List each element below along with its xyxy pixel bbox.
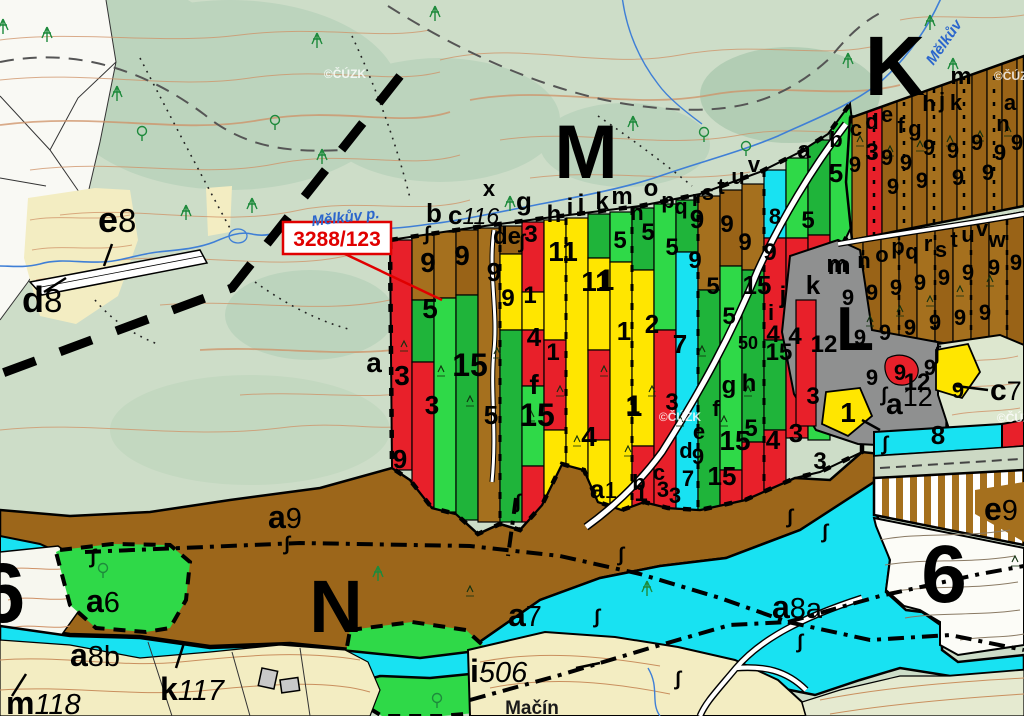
label-num-100: 5 <box>706 273 719 300</box>
label-num-151: 9 <box>879 320 891 345</box>
label-num-125: 3 <box>669 483 681 508</box>
label-r-q: q <box>905 239 918 264</box>
label-ltr-h: h <box>547 201 562 228</box>
label-r-r: r <box>924 231 933 256</box>
label-m118: m118 <box>6 685 81 716</box>
label-num-124: 3 <box>657 477 669 502</box>
label-k-f: f <box>897 113 905 138</box>
label-num-144: 9 <box>890 275 902 300</box>
label-a9: a9 <box>268 499 302 535</box>
label-r-u: u <box>961 222 974 247</box>
label-ltr-a-left: a <box>366 347 382 378</box>
label-ltr-s: s <box>702 180 714 205</box>
label-num-92: 15 <box>519 397 555 433</box>
label-num-95: 2 <box>645 309 659 339</box>
label-num-138: 9 <box>887 174 899 199</box>
label-num-118: 3 <box>789 418 803 448</box>
label-ltr-x: x <box>483 176 496 201</box>
label-a1: a1 <box>590 474 617 504</box>
label-num-115: 5 <box>744 415 757 442</box>
label-num-161: 12 <box>904 369 931 396</box>
label-k-a: a <box>1004 90 1017 115</box>
label-num-163: 8 <box>769 204 781 229</box>
label-num-145: 9 <box>914 270 926 295</box>
label-num-149: 9 <box>1010 250 1022 275</box>
label-num-78: 5 <box>422 293 438 324</box>
label-a6: a6 <box>86 583 120 619</box>
label-b-d: d <box>679 438 692 463</box>
label-r-s: s <box>935 237 947 262</box>
label-num-102: 5 <box>613 227 626 254</box>
label-num-155: 9 <box>979 300 991 325</box>
label-r-w: w <box>987 227 1006 252</box>
label-num-137: 9 <box>1011 130 1023 155</box>
label-k-k: k <box>950 90 963 115</box>
label-num-134: 9 <box>947 138 959 163</box>
label-place-macin: Mačín <box>505 698 559 716</box>
label-num-90: 4 <box>527 322 542 352</box>
label-num-99: 9 <box>688 247 701 274</box>
label-b-h: h <box>742 370 757 397</box>
label-num-93: 1 <box>598 264 615 297</box>
label-num-116: 4 <box>581 421 597 452</box>
label-num-142: 9 <box>842 285 854 310</box>
label-num-123: 7 <box>682 466 694 491</box>
label-num-131: 9 <box>881 145 893 170</box>
label-ltr-b: b <box>426 198 442 228</box>
label-num-87: 3 <box>524 221 537 248</box>
label-wm-1: ©ČÚZK <box>659 409 702 424</box>
label-num-160: 12 <box>811 331 838 358</box>
label-l-m: m <box>827 250 850 280</box>
label-num-103: 5 <box>641 219 654 246</box>
label-num-79: 3 <box>394 360 410 391</box>
label-k-h: h <box>922 91 935 116</box>
label-l-j: j <box>779 282 787 309</box>
label-num-120: 3 <box>813 448 826 475</box>
callout-text: 3288/123 <box>293 228 381 251</box>
label-num-85: 9 <box>501 285 514 312</box>
label-num-135: 9 <box>971 130 983 155</box>
label-ltr-k: k <box>595 188 609 215</box>
label-num-91: 1 <box>546 339 559 366</box>
label-a8a: a8a <box>772 589 823 625</box>
map-canvas[interactable]: 3288/123 ∫∫∫∫∫∫∫∫∫∫∫∫∫∫ MKLN66e8d8a9a6a8… <box>0 0 1024 716</box>
label-num-148: 9 <box>988 255 1000 280</box>
label-r-t: t <box>950 227 958 252</box>
label-b-f: f <box>712 396 720 421</box>
label-num-132: 9 <box>900 150 912 175</box>
label-num-80: 3 <box>425 390 439 420</box>
label-ltr-q: q <box>674 194 687 219</box>
label-ltr-g: g <box>516 186 532 216</box>
label-num-129: 3 <box>865 139 878 166</box>
label-b-g: g <box>722 372 737 399</box>
label-a7: a7 <box>508 597 542 633</box>
label-num-128: 5 <box>829 158 843 188</box>
label-num-126: 1 <box>626 390 640 420</box>
label-num-150: 9 <box>854 325 866 350</box>
label-big-N: N <box>309 565 362 648</box>
label-e9: e9 <box>984 491 1018 527</box>
label-wm-2: ©ČÚZK <box>324 66 367 81</box>
label-num-164: 5 <box>801 207 814 234</box>
label-k-c: c <box>850 116 862 141</box>
label-num-130: 9 <box>849 152 861 177</box>
label-big-K: K <box>865 19 926 113</box>
label-num-106: 9 <box>720 211 733 238</box>
label-num-113: 4 <box>788 323 802 350</box>
label-num-109: 15 <box>743 270 772 300</box>
label-num-143: 9 <box>866 280 878 305</box>
label-num-104: 5 <box>665 234 678 261</box>
label-r-n: n <box>857 248 870 273</box>
label-num-121: 15 <box>708 461 737 491</box>
label-k117: k117 <box>160 671 226 707</box>
label-num-153: 9 <box>929 310 941 335</box>
label-r-p: p <box>891 234 904 259</box>
label-num-162: 1 <box>840 397 856 428</box>
field-yellow-small <box>206 186 232 236</box>
label-num-127: 1 <box>634 480 647 507</box>
label-ltr-a-top: a <box>797 137 811 164</box>
label-big-M: M <box>554 110 617 195</box>
label-r-v: v <box>976 216 989 241</box>
label-k-m: m <box>950 63 971 90</box>
label-num-97: 7 <box>673 329 687 359</box>
label-c7: c7 <box>990 374 1022 407</box>
building-footprint <box>258 668 277 689</box>
label-i506: i506 <box>470 653 528 689</box>
label-num-154: 9 <box>954 305 966 330</box>
label-ltr-i: i <box>567 194 574 221</box>
label-num-146: 9 <box>938 265 950 290</box>
label-num-117: 4 <box>766 425 781 455</box>
label-num-101: 5 <box>722 303 735 330</box>
label-num-105: 9 <box>690 204 704 234</box>
label-ltr-f-mid: f <box>529 369 539 400</box>
label-ltr-de: de <box>493 223 521 250</box>
label-ltr-p: p <box>661 188 674 213</box>
label-k-g: g <box>908 116 921 141</box>
label-num-107: 9 <box>738 229 751 256</box>
label-num-76: 9 <box>420 247 436 278</box>
label-k-e: e <box>881 102 893 127</box>
label-ltr-o: o <box>644 175 659 202</box>
label-a8b: a8b <box>70 637 120 673</box>
label-k-j: j <box>938 88 945 113</box>
label-ltr-u: u <box>731 164 744 189</box>
label-num-84: 9 <box>487 257 501 287</box>
label-r-o: o <box>875 242 888 267</box>
label-num-136: 9 <box>994 140 1006 165</box>
label-num-119: 3 <box>806 383 819 410</box>
label-ltr-j: j <box>577 190 585 217</box>
label-num-140: 9 <box>952 165 964 190</box>
label-num-165: 8 <box>931 420 945 450</box>
label-c116: c116 <box>448 200 499 230</box>
label-num-82: 15 <box>452 347 488 383</box>
label-num-77: 9 <box>454 240 470 271</box>
label-num-159: 9 <box>952 378 964 403</box>
label-ltr-v: v <box>748 152 761 177</box>
label-num-147: 9 <box>962 260 974 285</box>
label-num-81: 9 <box>393 444 407 474</box>
label-num-156: 9 <box>866 365 878 390</box>
label-big-6-left: 6 <box>0 546 25 640</box>
label-num-139: 9 <box>916 168 928 193</box>
label-num-110: 50 <box>738 333 758 353</box>
label-k-d: d <box>865 109 878 134</box>
label-k-b: b <box>829 127 842 152</box>
map-container: 3288/123 ∫∫∫∫∫∫∫∫∫∫∫∫∫∫ MKLN66e8d8a9a6a8… <box>0 0 1024 716</box>
label-num-141: 9 <box>982 160 994 185</box>
label-big-6-right: 6 <box>921 529 967 620</box>
label-wm-3: ©ČÚZK <box>994 68 1024 83</box>
label-num-88: 11 <box>548 236 578 267</box>
label-num-94: 1 <box>617 316 631 346</box>
label-num-86: 1 <box>523 282 536 309</box>
label-e8: e8 <box>98 199 136 240</box>
label-num-133: 9 <box>923 135 935 160</box>
label-num-108: 9 <box>763 239 776 266</box>
label-l-k: k <box>806 270 821 300</box>
building-footprint <box>280 677 300 692</box>
label-d8: d8 <box>22 279 62 320</box>
label-num-152: 9 <box>904 315 916 340</box>
label-wm-4: ©ČÚZK <box>997 410 1024 425</box>
label-ltr-t: t <box>717 174 725 199</box>
label-num-83: 5 <box>484 400 498 430</box>
